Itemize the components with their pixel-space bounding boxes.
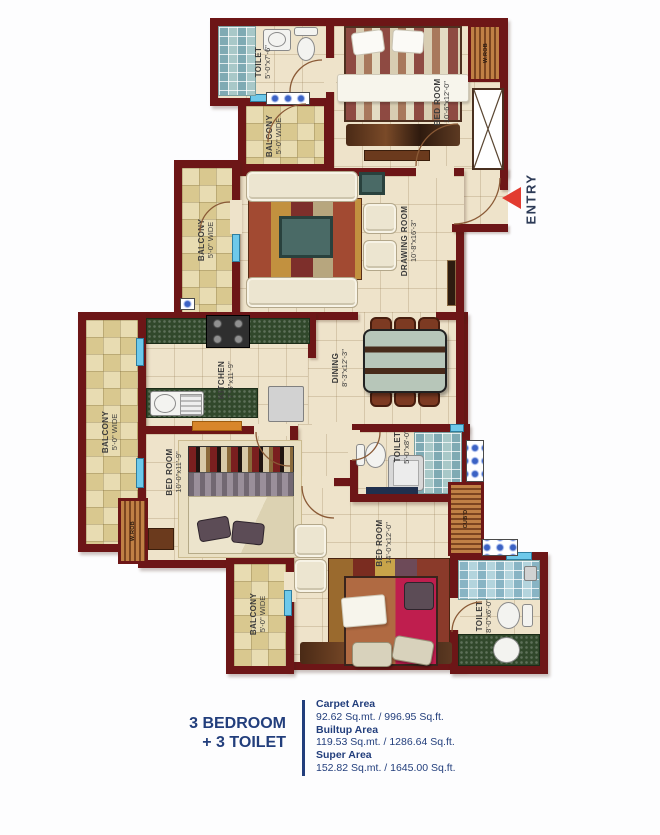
room-label-toilet-bottom-right: TOILET 8'-0"x6'-0" <box>475 599 493 633</box>
window <box>284 590 292 616</box>
wall <box>456 224 464 434</box>
door-opening <box>312 422 352 434</box>
wc-tank <box>522 604 533 627</box>
wardrobe-label: W.ROB <box>483 43 489 63</box>
pillow <box>351 29 386 56</box>
room-dims: 7'-6"x11'-9" <box>227 361 235 399</box>
bench <box>148 528 174 550</box>
pillow <box>391 29 425 54</box>
window <box>232 234 240 262</box>
kitchen-mat <box>192 421 242 431</box>
wall <box>312 312 358 320</box>
door-opening <box>230 200 242 234</box>
plan-title-line1: 3 BEDROOM <box>168 714 286 733</box>
room-dims: 10'-0"x11'-9" <box>175 448 183 495</box>
area-value: 119.53 Sq.mt. / 1286.64 Sq.ft. <box>316 736 456 749</box>
room-dims: 8'-0"x6'-0" <box>485 599 493 633</box>
bed-blanket <box>188 472 294 498</box>
wc-tank <box>294 27 318 36</box>
room-dims: 5'-0" WIDE <box>111 411 119 453</box>
pillow <box>404 582 434 610</box>
room-label-balcony-lower-left: BALCONY 5'-0" WIDE <box>101 411 119 453</box>
room-label-bedroom-top: BED ROOM 10'-6"x12'-0" <box>433 78 451 125</box>
bed-sheet <box>341 594 387 628</box>
pillow <box>231 520 265 545</box>
plan-title-line2: + 3 TOILET <box>168 733 286 752</box>
room-label-kitchen: KITCHEN 7'-6"x11'-9" <box>217 361 235 399</box>
bench <box>364 150 430 161</box>
floor-plan: TOILET 5'-0"x7'-6" BALCONY 5'-0" WIDE BE… <box>0 0 660 695</box>
armchair <box>294 524 327 558</box>
cupboard-label: CUB'D <box>463 510 469 529</box>
room-label-toilet-top: TOILET 5'-0"x7'-6" <box>254 45 272 79</box>
entry-arrow-icon <box>502 187 521 209</box>
room-label-balcony-top: BALCONY 5'-0" WIDE <box>265 115 283 157</box>
room-dims: 8'-3"x12'-3" <box>341 349 349 387</box>
room-label-bedroom-left: BED ROOM 10'-0"x11'-9" <box>165 448 183 495</box>
sofa <box>246 171 358 202</box>
room-label-toilet-middle: TOILET 5'-0"x8'-0" <box>393 430 411 464</box>
room-dims: 5'-0"x7'-6" <box>264 45 272 79</box>
sink-basin <box>154 394 176 413</box>
threshold <box>366 487 418 494</box>
door-opening <box>254 424 290 436</box>
planter <box>266 92 310 105</box>
stove <box>206 315 250 348</box>
rug <box>346 124 460 146</box>
wardrobe-label: W.ROB <box>130 521 136 541</box>
shaft <box>472 88 504 170</box>
side-table <box>359 172 385 195</box>
room-label-dining: DINING 8'-3"x12'-3" <box>331 349 349 387</box>
wc-tank <box>356 444 365 466</box>
area-label: Super Area <box>316 749 456 762</box>
floorplan-page: TOILET 5'-0"x7'-6" BALCONY 5'-0" WIDE BE… <box>0 0 660 835</box>
plan-title: 3 BEDROOM + 3 TOILET <box>168 714 286 752</box>
dining-table <box>363 329 447 393</box>
coffee-table <box>279 216 333 258</box>
room-dims: 5'-0" WIDE <box>259 593 267 635</box>
room-dims: 10'-6"x12'-0" <box>443 78 451 125</box>
room-label-balcony-upper-left: BALCONY 5'-0" WIDE <box>197 219 215 261</box>
entry-label: ENTRY <box>524 173 539 224</box>
armchair <box>294 559 327 593</box>
planter <box>466 440 484 482</box>
planter <box>482 539 518 556</box>
door-opening <box>324 58 336 92</box>
room-dims: 5'-0" WIDE <box>207 219 215 261</box>
door-opening <box>416 166 454 178</box>
armchair <box>363 240 397 271</box>
shower-area <box>218 26 256 96</box>
stool <box>524 566 537 581</box>
room-dims: 5'-0" WIDE <box>275 115 283 157</box>
area-label: Builtup Area <box>316 724 456 737</box>
wash-basin <box>493 637 520 663</box>
sofa <box>246 277 358 308</box>
refrigerator <box>268 386 304 422</box>
armchair <box>363 203 397 234</box>
bed-headboard <box>188 446 294 474</box>
ottoman <box>352 642 392 667</box>
wc-toilet <box>297 37 315 61</box>
area-value: 92.62 Sq.mt. / 996.95 Sq.ft. <box>316 711 456 724</box>
window <box>450 424 464 432</box>
room-label-drawing: DRAWING ROOM 10'-8"x16'-3" <box>400 206 418 277</box>
planter <box>180 298 195 310</box>
room-dims: 5'-0"x8'-0" <box>403 430 411 464</box>
area-label: Carpet Area <box>316 698 456 711</box>
window <box>136 458 144 488</box>
room-label-balcony-bottom: BALCONY 5'-0" WIDE <box>249 593 267 635</box>
room-label-bedroom-bottom: BED ROOM 14'-0"x12'-0" <box>375 519 393 566</box>
wc-toilet <box>365 442 386 468</box>
wc-toilet <box>497 602 520 629</box>
room-dims: 14'-0"x12'-0" <box>385 519 393 566</box>
area-value: 152.82 Sq.mt. / 1645.00 Sq.ft. <box>316 762 456 775</box>
room-balcony-top <box>238 98 332 172</box>
wall <box>452 224 508 232</box>
tv-unit <box>447 260 456 306</box>
door-opening <box>298 476 334 488</box>
legend-divider <box>302 700 305 776</box>
sink-drainer <box>180 394 202 415</box>
room-dims: 10'-8"x16'-3" <box>410 206 418 277</box>
area-details: Carpet Area 92.62 Sq.mt. / 996.95 Sq.ft.… <box>316 698 456 775</box>
window <box>136 338 144 366</box>
